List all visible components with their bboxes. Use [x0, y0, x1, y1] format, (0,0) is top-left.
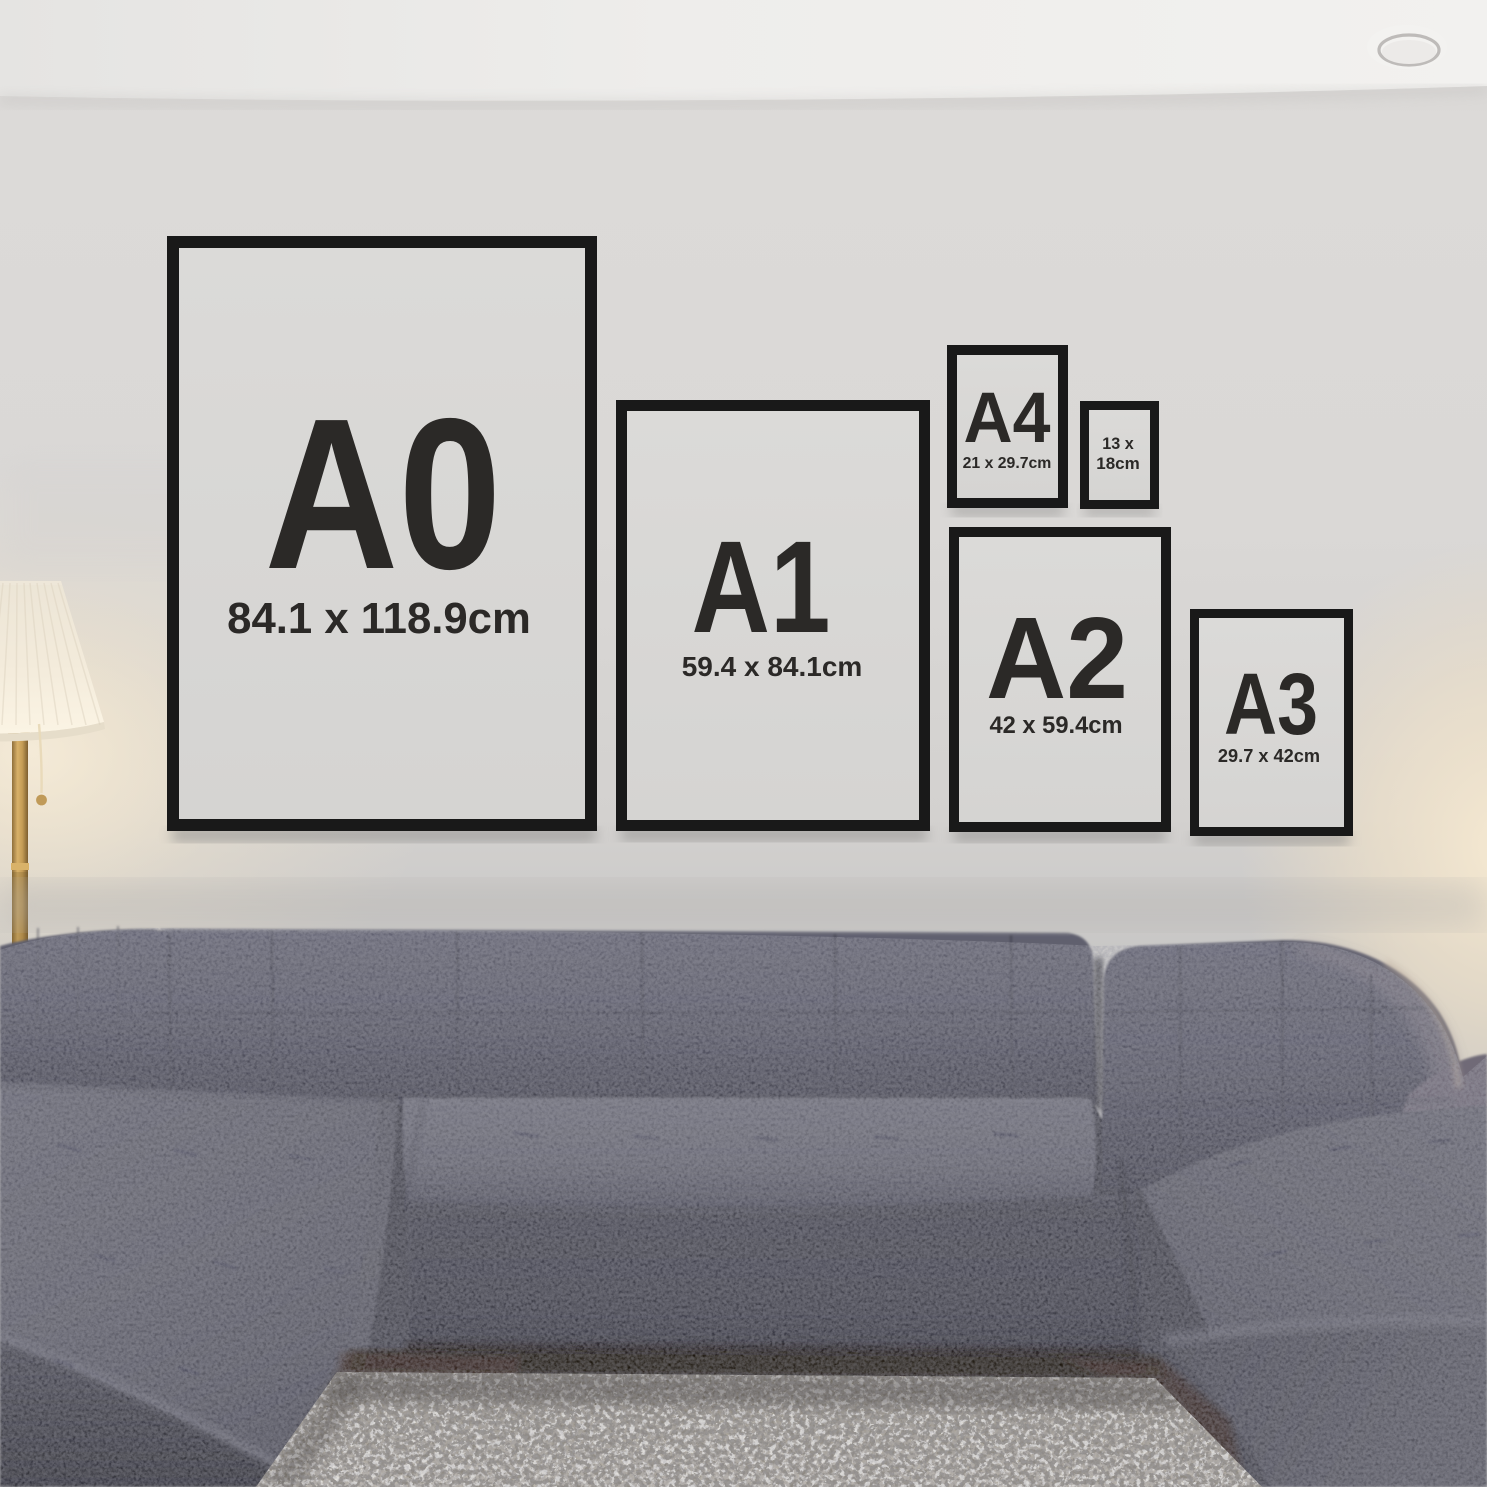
svg-text:29.7 x 42cm: 29.7 x 42cm [1218, 746, 1320, 766]
svg-text:84.1 x 118.9cm: 84.1 x 118.9cm [227, 594, 531, 643]
svg-text:13 x: 13 x [1102, 435, 1134, 453]
svg-text:A1: A1 [692, 513, 831, 660]
svg-text:21 x 29.7cm: 21 x 29.7cm [963, 455, 1052, 472]
svg-text:59.4 x 84.1cm: 59.4 x 84.1cm [682, 651, 863, 682]
svg-text:A2: A2 [986, 593, 1128, 723]
svg-text:A3: A3 [1224, 656, 1318, 753]
svg-text:A4: A4 [964, 379, 1051, 458]
svg-text:A0: A0 [265, 373, 502, 614]
svg-text:18cm: 18cm [1096, 454, 1139, 473]
svg-text:42 x 59.4cm: 42 x 59.4cm [989, 713, 1122, 739]
